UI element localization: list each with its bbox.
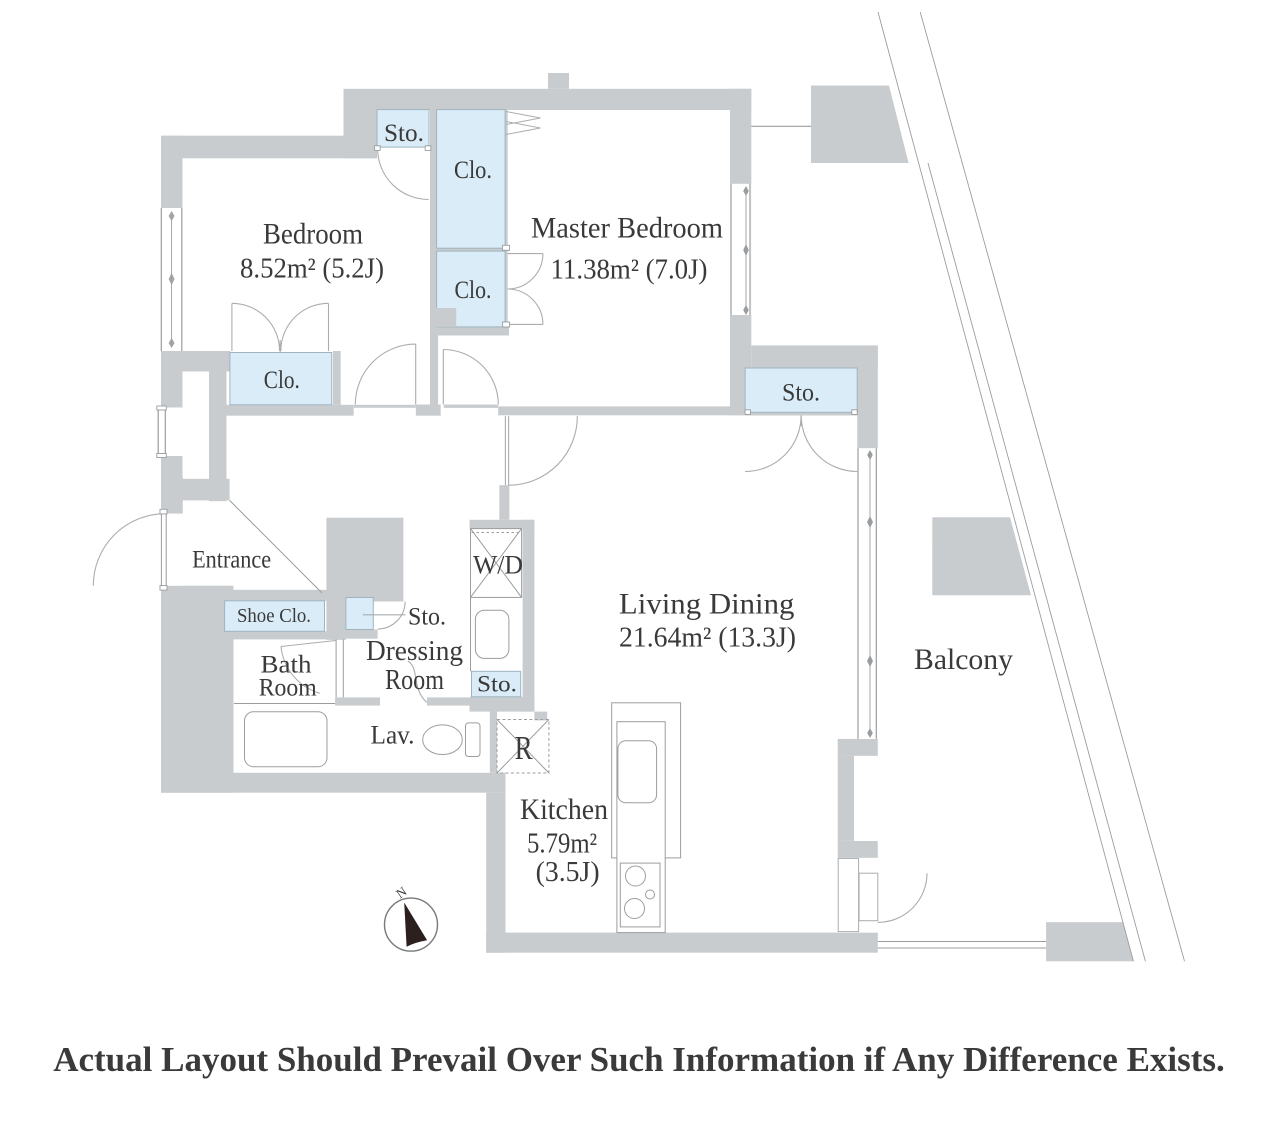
- svg-text:Shoe Clo.: Shoe Clo.: [237, 605, 311, 627]
- svg-text:8.52m² (5.2J): 8.52m² (5.2J): [240, 253, 384, 285]
- svg-text:Clo.: Clo.: [455, 277, 492, 304]
- svg-text:Kitchen: Kitchen: [520, 793, 608, 826]
- svg-text:Clo.: Clo.: [264, 367, 300, 394]
- svg-text:11.38m² (7.0J): 11.38m² (7.0J): [551, 254, 708, 286]
- svg-text:Lav.: Lav.: [371, 721, 415, 750]
- svg-text:Sto.: Sto.: [384, 120, 424, 147]
- svg-text:Balcony: Balcony: [914, 643, 1013, 676]
- svg-text:Dressing: Dressing: [366, 635, 463, 667]
- svg-text:Sto.: Sto.: [782, 380, 820, 407]
- svg-text:Living Dining: Living Dining: [619, 588, 795, 621]
- svg-text:Entrance: Entrance: [192, 547, 271, 574]
- svg-text:Room: Room: [385, 664, 444, 696]
- svg-text:Room: Room: [259, 675, 318, 702]
- svg-text:Actual Layout Should Prevail O: Actual Layout Should Prevail Over Such I…: [53, 1040, 1225, 1079]
- svg-text:W/D: W/D: [473, 551, 523, 580]
- svg-text:(3.5J): (3.5J): [536, 856, 600, 888]
- svg-text:Sto.: Sto.: [477, 672, 517, 697]
- svg-text:Bedroom: Bedroom: [263, 218, 363, 251]
- svg-text:Clo.: Clo.: [454, 157, 492, 184]
- svg-text:Sto.: Sto.: [408, 604, 446, 631]
- svg-text:21.64m² (13.3J): 21.64m² (13.3J): [619, 622, 796, 654]
- svg-text:Master Bedroom: Master Bedroom: [531, 212, 723, 245]
- svg-text:5.79m²: 5.79m²: [527, 828, 597, 860]
- svg-text:R: R: [515, 730, 533, 767]
